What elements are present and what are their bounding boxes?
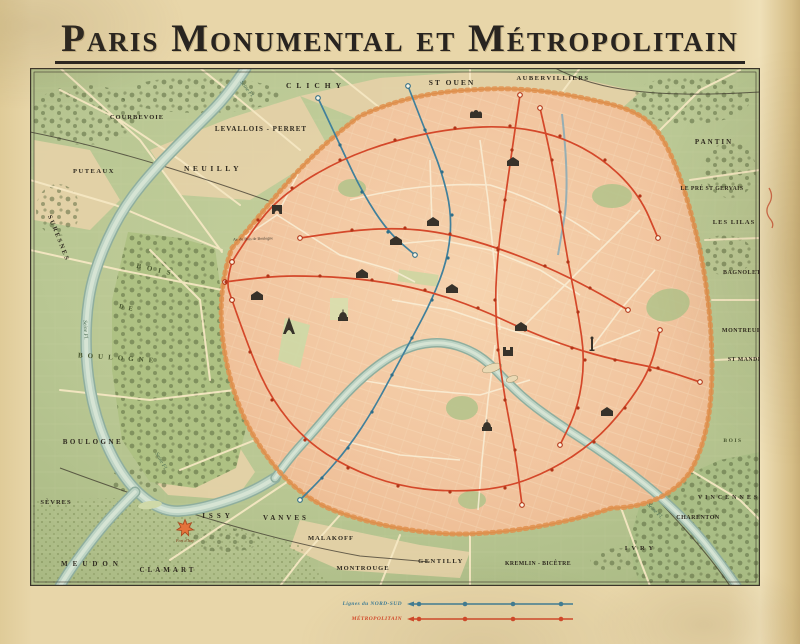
paris-map: Fort d'Issy COURBEVOIELEVALLOIS - PERRET… [30,68,760,586]
map-label-meudon: MEUDON [61,560,123,568]
map-legend: Lignes du NORD-SUD MÉTROPOLITAIN [330,596,580,626]
map-label-issy: ISSY [202,512,234,520]
station-dot [448,490,451,493]
station-dot [450,213,453,216]
station-dot [592,440,595,443]
legend-metro-line [405,614,580,624]
station-dot [496,248,499,251]
station-dot [270,398,273,401]
map-label-gentilly: GENTILLY [418,558,464,565]
station-dot [603,158,606,161]
legend-nordsud-label: Lignes du NORD-SUD [330,601,405,607]
station-dot [290,186,293,189]
map-label-clichy: CLICHY [286,81,346,90]
legend-metro-label: MÉTROPOLITAIN [330,616,405,622]
station-dot [370,410,373,413]
map-label-boulogne: BOULOGNE [63,438,123,446]
map-label-st-mand-: ST MANDÉ [728,355,760,363]
station-dot [423,288,426,291]
map-label-st-ouen: ST OUEN [429,78,476,87]
station-dot [648,368,651,371]
map-label-pantin: PANTIN [695,138,733,146]
station-dot [566,260,569,263]
station-dot [503,486,506,489]
station-dot [510,148,513,151]
legend-row-nordsud: Lignes du NORD-SUD [330,596,580,611]
station-dot [623,406,626,409]
map-label-s-vres: SÈVRES [40,498,71,506]
station-dot [360,190,363,193]
page-title: Paris Monumental et Métropolitain [0,18,800,64]
station-dot [570,346,573,349]
map-sheet: Paris Monumental et Métropolitain [0,0,800,644]
station-dot [503,398,506,401]
station-dot [338,143,341,146]
station-dot [350,228,353,231]
map-label-puteaux: PUTEAUX [73,168,115,175]
station-dot [393,138,396,141]
station-dot [256,218,259,221]
map-label-clamart: CLAMART [140,566,197,574]
map-label-kremlin-bic-tre: KREMLIN - BICÊTRE [505,559,571,567]
map-title-text: Paris Monumental et Métropolitain [55,18,745,64]
map-label-seine-fl-: Seine Fl. [81,320,88,340]
map-label-montreuil: MONTREUIL [722,328,760,334]
station-dot [318,274,321,277]
map-plate: Fort d'Issy COURBEVOIELEVALLOIS - PERRET… [30,68,760,586]
map-label-malakoff: MALAKOFF [308,535,354,542]
station-dot [588,286,591,289]
station-dot [224,280,227,283]
map-label-courbevoie: COURBEVOIE [110,114,164,121]
station-dot [320,476,323,479]
station-dot [576,406,579,409]
station-dot [446,256,449,259]
map-label-bois: BOIS [723,438,742,444]
station-dot [558,134,561,137]
station-dot [520,503,525,508]
station-dot [583,358,586,361]
legend-nordsud-line [405,599,580,609]
station-dot [338,158,341,161]
station-dot [386,230,389,233]
station-dot [503,198,506,201]
station-dot [476,306,479,309]
station-dot [550,158,553,161]
station-dot [538,106,543,111]
station-dot [423,128,426,131]
station-dot [230,298,235,303]
station-dot [298,236,303,241]
station-dot [550,468,553,471]
map-label-levallois-perret: LEVALLOIS - PERRET [215,125,307,133]
station-dot [518,93,523,98]
station-dot [266,274,269,277]
arc-de-triomphe-icon [272,205,282,214]
legend-row-metropolitain: MÉTROPOLITAIN [330,611,580,626]
station-dot [230,260,235,265]
station-dot [626,308,631,313]
map-label-vanves: VANVES [263,514,309,522]
station-dot [406,84,411,89]
station-dot [656,366,659,369]
station-dot [698,380,703,385]
station-dot [496,348,499,351]
station-dot [413,253,418,258]
station-dot [410,336,413,339]
station-dot [493,298,496,301]
map-label-montrouge: MONTROUGE [336,565,389,572]
station-dot [448,232,451,235]
station-dot [576,310,579,313]
station-dot [370,278,373,281]
map-label-le-pr-st-gervais: LE PRÉ ST GERVAIS [681,184,744,192]
fort-issy-label: Fort d'Issy [175,538,194,543]
station-dot [543,264,546,267]
station-dot [656,236,661,241]
station-dot [316,96,321,101]
map-label-les-lilas: LES LILAS [713,219,755,226]
map-label-bagnolet: BAGNOLET [723,270,760,276]
station-dot [658,328,663,333]
station-dot [403,226,406,229]
station-dot [390,373,393,376]
station-dot [248,350,251,353]
station-dot [453,126,456,129]
map-label-ivry: IVRY [625,545,657,552]
station-dot [558,443,563,448]
station-dot [638,194,641,197]
station-dot [346,466,349,469]
station-dot [508,124,511,127]
station-dot [440,170,443,173]
station-dot [303,438,306,441]
station-dot [558,210,561,213]
station-dot [430,298,433,301]
map-label-charenton: CHARENTON [676,515,720,521]
map-label-neuilly: NEUILLY [184,164,242,173]
map-label-vincennes: VINCENNES [698,495,760,501]
station-dot [346,446,349,449]
map-label-aubervilliers: AUBERVILLIERS [516,75,589,82]
margin-red-mark [763,186,779,230]
station-dot [298,498,303,503]
station-dot [513,448,516,451]
station-dot [613,358,616,361]
station-dot [396,484,399,487]
